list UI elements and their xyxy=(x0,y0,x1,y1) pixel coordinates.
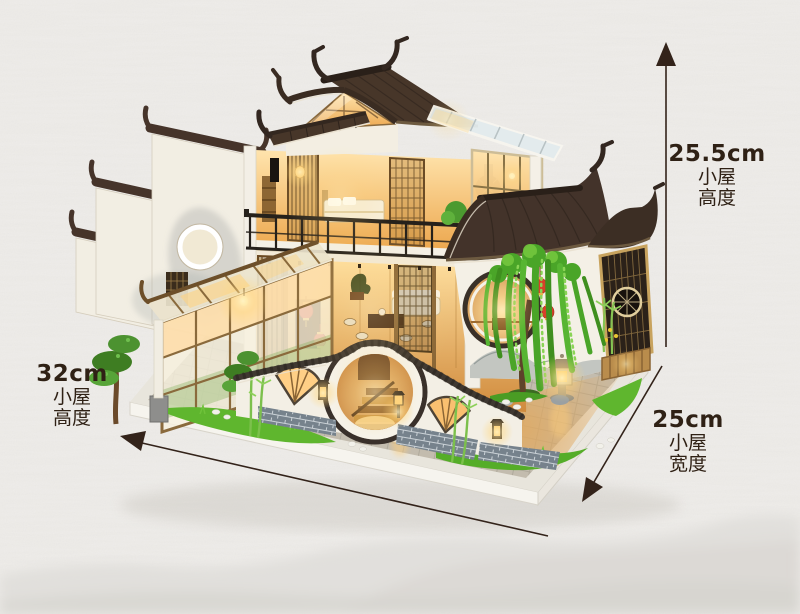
lattice-screen-panel xyxy=(600,246,652,362)
dollhouse-illustration xyxy=(0,0,800,614)
length-annotation: 32cm 小屋 高度 xyxy=(20,361,124,429)
product-image: 25.5cm 小屋 高度 32cm 小屋 高度 25cm 小屋 宽度 xyxy=(0,0,800,614)
height-annotation: 25.5cm 小屋 高度 xyxy=(660,141,774,209)
length-label-2: 高度 xyxy=(20,408,124,429)
height-label-2: 高度 xyxy=(660,188,774,209)
length-label-1: 小屋 xyxy=(20,387,124,408)
width-value: 25cm xyxy=(636,407,740,433)
width-label-2: 宽度 xyxy=(636,454,740,475)
width-label-1: 小屋 xyxy=(636,433,740,454)
length-value: 32cm xyxy=(20,361,124,387)
round-window xyxy=(180,227,220,267)
width-annotation: 25cm 小屋 宽度 xyxy=(636,407,740,475)
height-label-1: 小屋 xyxy=(660,167,774,188)
height-value: 25.5cm xyxy=(660,141,774,167)
